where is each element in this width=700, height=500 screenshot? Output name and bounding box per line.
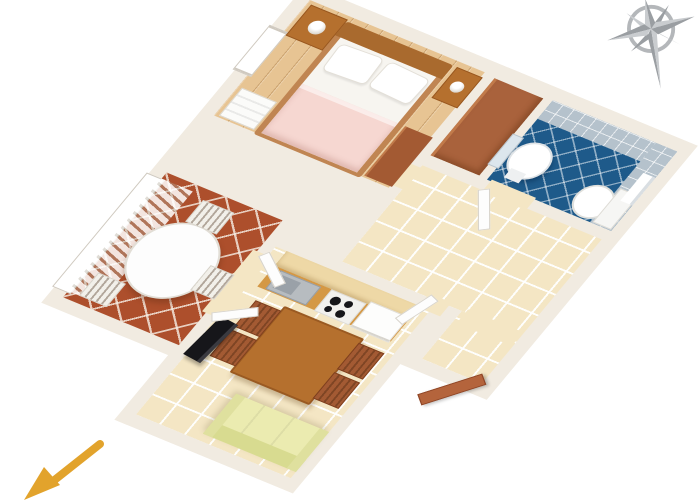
bathroom-door (478, 189, 490, 231)
table-lamp-right (447, 80, 467, 95)
stove-burner (323, 305, 334, 313)
table-lamp-left (304, 18, 329, 36)
stove-burner (342, 300, 354, 309)
floor-plan-render (0, 0, 700, 500)
entrance-arrow-icon (8, 438, 118, 500)
stove-burner (333, 309, 347, 319)
compass-rose-icon (597, 0, 700, 102)
